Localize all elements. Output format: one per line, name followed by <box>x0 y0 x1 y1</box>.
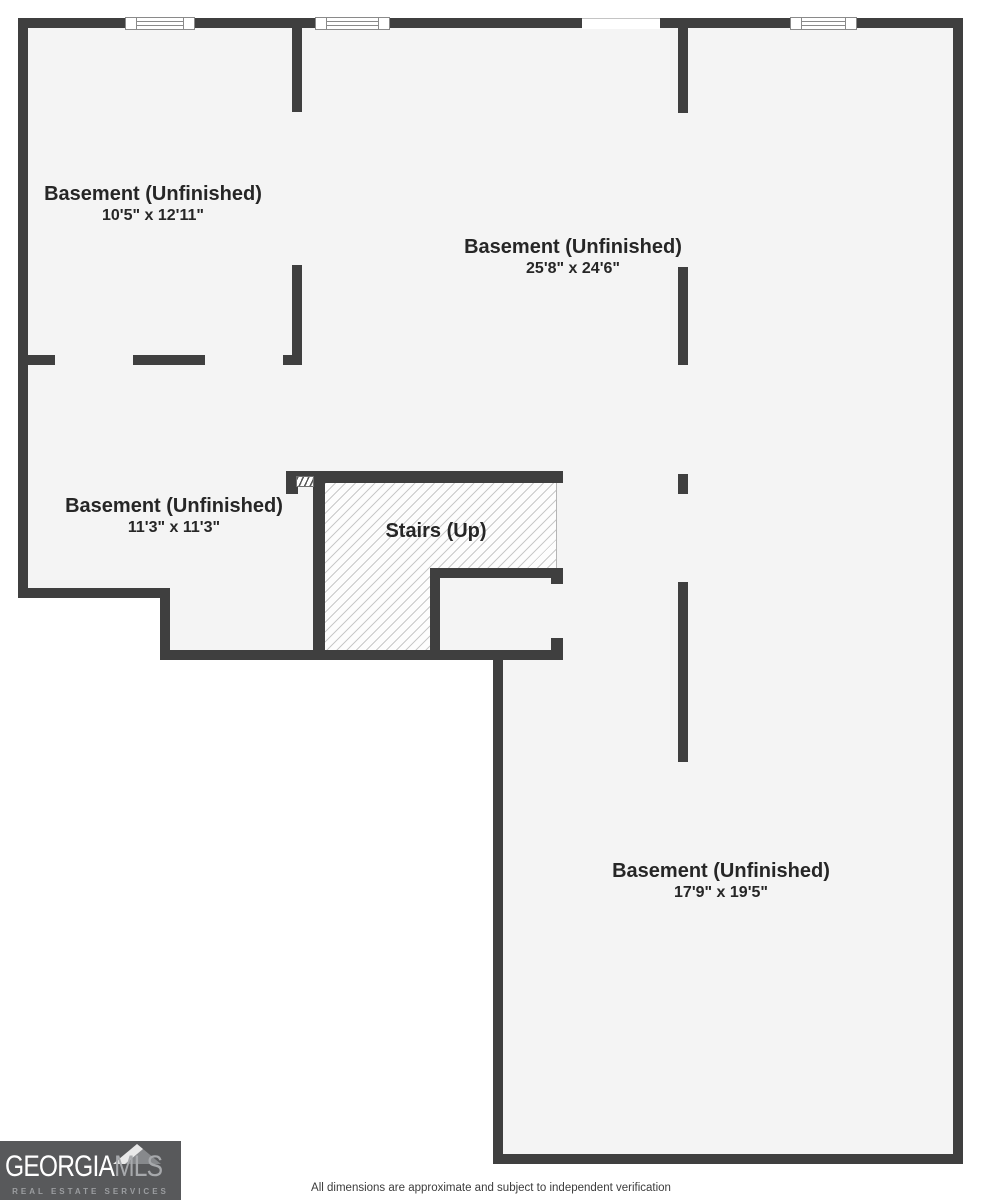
stairs-door-opening <box>296 476 314 487</box>
logo-tagline: REAL ESTATE SERVICES <box>0 1187 181 1196</box>
wall-top-5 <box>857 18 963 28</box>
room-dimensions: 11'3" x 11'3" <box>65 517 283 538</box>
window-symbol <box>315 17 390 30</box>
wall-top-2 <box>195 18 315 28</box>
window-post <box>378 18 379 29</box>
window-glass <box>802 21 845 26</box>
wall-bottom-left-room <box>18 588 167 598</box>
partition-a-upper <box>292 28 302 112</box>
wall-top-4 <box>660 18 790 28</box>
partition-b-4 <box>678 582 688 762</box>
room-label-basement-nw: Basement (Unfinished) 10'5" x 12'11" <box>44 183 262 226</box>
stairs-wall-inner-h <box>430 568 563 578</box>
room-name: Basement (Unfinished) <box>612 860 830 882</box>
room-label-basement-west: Basement (Unfinished) 11'3" x 11'3" <box>65 495 283 538</box>
partition-b-2 <box>678 267 688 365</box>
window-post <box>183 18 184 29</box>
room-label-basement-center: Basement (Unfinished) 25'8" x 24'6" <box>464 236 682 279</box>
stairs-wall-inner-v <box>430 578 440 650</box>
wall-bottom-room-west <box>493 650 503 1164</box>
partition-b-1 <box>678 28 688 113</box>
stairs-hatch-edge <box>556 483 557 568</box>
stairs-wall-left <box>313 483 325 660</box>
disclaimer-text: All dimensions are approximate and subje… <box>311 1182 671 1194</box>
room-name: Basement (Unfinished) <box>464 236 682 258</box>
wall-top-1 <box>18 18 125 28</box>
room-label-basement-se: Basement (Unfinished) 17'9" x 19'5" <box>612 860 830 903</box>
logo-mls-text: MLS <box>114 1150 162 1183</box>
stairs-wall-top <box>286 471 563 483</box>
window-symbol <box>790 17 857 30</box>
partition-b-3 <box>678 474 688 494</box>
partition-h-1 <box>18 355 55 365</box>
room-name: Basement (Unfinished) <box>44 183 262 205</box>
partition-h-2 <box>133 355 205 365</box>
room-dimensions: 25'8" x 24'6" <box>464 258 682 279</box>
floor-plan: Basement (Unfinished) 10'5" x 12'11" Bas… <box>0 0 982 1200</box>
logo-georgia-text: GEORGIA <box>5 1150 114 1183</box>
stairs-hatch-lower <box>325 483 430 650</box>
room-dimensions: 17'9" x 19'5" <box>612 882 830 903</box>
stairs-wall-right-stub-bottom <box>551 638 563 660</box>
window-glass <box>137 21 183 26</box>
wall-bottom <box>493 1154 963 1164</box>
window-glass <box>327 21 378 26</box>
room-dimensions: 10'5" x 12'11" <box>44 205 262 226</box>
door-opening <box>582 18 660 29</box>
window-post <box>845 18 846 29</box>
logo-brand-text: GEORGIAMLS <box>5 1152 162 1182</box>
room-name: Basement (Unfinished) <box>65 495 283 517</box>
stairs-label: Stairs (Up) <box>385 520 486 542</box>
wall-left <box>18 18 28 598</box>
stairs-wall-right-stub-top <box>551 568 563 584</box>
partition-h-3 <box>283 355 302 365</box>
wall-top-3 <box>390 18 582 28</box>
partition-a-lower <box>292 265 302 365</box>
window-symbol <box>125 17 195 30</box>
wall-right <box>953 18 963 1164</box>
georgia-mls-logo: GEORGIAMLS REAL ESTATE SERVICES <box>0 1141 181 1200</box>
room-name: Stairs (Up) <box>385 520 486 542</box>
